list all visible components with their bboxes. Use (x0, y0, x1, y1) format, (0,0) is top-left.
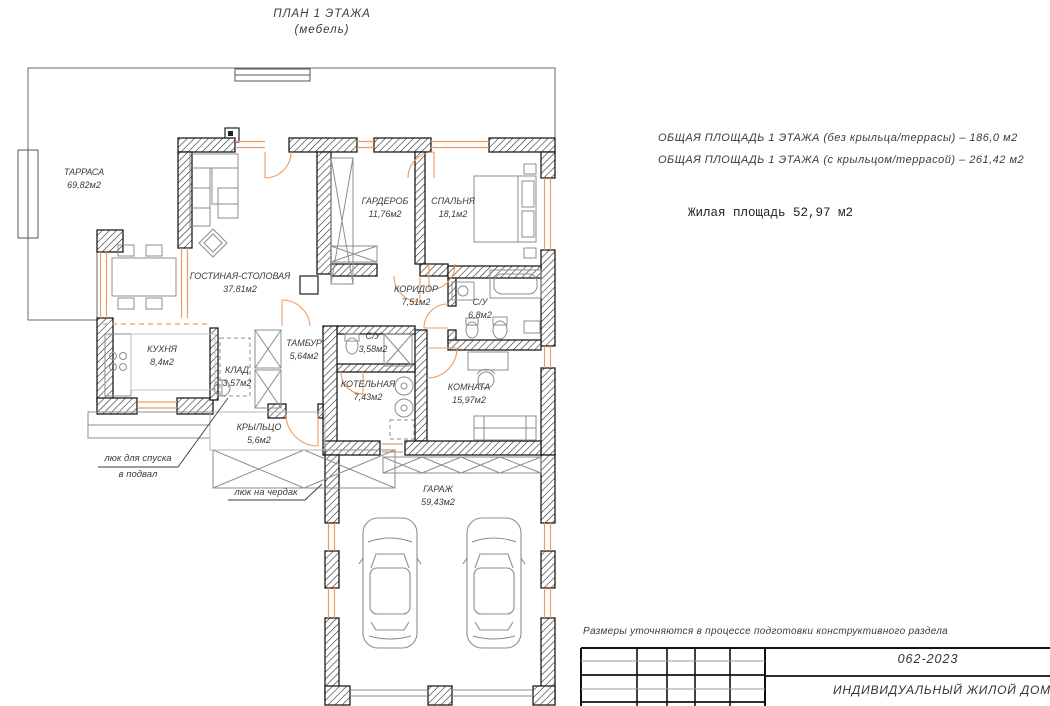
room-name: КОМНАТА (448, 381, 491, 394)
room-name: ГАРАЖ (421, 483, 455, 496)
room-name: С/У (359, 330, 388, 343)
room-label-pantry: КЛАД3,57м2 (223, 364, 252, 390)
doc-number: 062-2023 (898, 652, 959, 666)
room-label-garage: ГАРАЖ59,43м2 (421, 483, 455, 509)
room-name: ГАРДЕРОБ (362, 195, 409, 208)
room-name: ТАРРАСА (64, 166, 104, 179)
room-area: 59,43м2 (421, 496, 455, 509)
room-name: С/У (468, 296, 492, 309)
room-area: 15,97м2 (448, 394, 491, 407)
room-area: 3,57м2 (223, 377, 252, 390)
title-block (581, 648, 1050, 706)
room-area: 7,51м2 (394, 296, 438, 309)
room-name: КОРИДОР (394, 283, 438, 296)
room-label-boiler: КОТЕЛЬНАЯ7,43м2 (341, 378, 395, 404)
room-name: СПАЛЬНЯ (431, 195, 475, 208)
attic-hatch-note: люк на чердак (234, 487, 297, 499)
room-name: ГОСТИНАЯ-СТОЛОВАЯ (190, 270, 291, 283)
basement-hatch-note-line1: люк для спуска (104, 453, 171, 465)
duct-block (300, 276, 318, 294)
room-label-terrace: ТАРРАСА69,82м2 (64, 166, 104, 192)
room-area: 5,6м2 (237, 434, 282, 447)
room-label-wardrobe: ГАРДЕРОБ11,76м2 (362, 195, 409, 221)
doc-title: ИНДИВИДУАЛЬНЫЙ ЖИЛОЙ ДОМ (833, 683, 1050, 697)
basement-hatch-note-line2: в подвал (119, 469, 158, 481)
room-name: КРЫЛЬЦО (237, 421, 282, 434)
room-area: 37,81м2 (190, 283, 291, 296)
room-name: КОТЕЛЬНАЯ (341, 378, 395, 391)
living-area-text: Жилая площадь 52,97 м2 (688, 206, 853, 220)
page-title-line2: (мебель) (295, 24, 350, 36)
room-area: 3,58м2 (359, 343, 388, 356)
room-name: КУХНЯ (147, 343, 177, 356)
total-area-with-porch: ОБЩАЯ ПЛОЩАДЬ 1 ЭТАЖА (с крыльцом/террас… (658, 154, 1024, 166)
total-area-without-porch: ОБЩАЯ ПЛОЩАДЬ 1 ЭТАЖА (без крыльца/терра… (658, 132, 1018, 144)
room-label-bath1: С/У6,8м2 (468, 296, 492, 322)
room-area: 69,82м2 (64, 179, 104, 192)
room-area: 18,1м2 (431, 208, 475, 221)
room-area: 11,76м2 (362, 208, 409, 221)
room-label-living: ГОСТИНАЯ-СТОЛОВАЯ37,81м2 (190, 270, 291, 296)
room-label-vestibule: ТАМБУР5,64м2 (286, 337, 322, 363)
room-area: 5,64м2 (286, 350, 322, 363)
car-left (359, 518, 421, 648)
car-right (463, 518, 525, 648)
room-label-corridor: КОРИДОР7,51м2 (394, 283, 438, 309)
room-label-room: КОМНАТА15,97м2 (448, 381, 491, 407)
walls (97, 138, 555, 705)
page-title-line1: ПЛАН 1 ЭТАЖА (273, 8, 371, 20)
room-label-porch: КРЫЛЬЦО5,6м2 (237, 421, 282, 447)
room-label-bedroom: СПАЛЬНЯ18,1м2 (431, 195, 475, 221)
room-name: ТАМБУР (286, 337, 322, 350)
footer-note: Размеры уточняются в процессе подготовки… (583, 626, 948, 637)
drawing-sheet: ПЛАН 1 ЭТАЖА (мебель) ОБЩАЯ ПЛОЩАДЬ 1 ЭТ… (0, 0, 1050, 706)
room-name: КЛАД (223, 364, 252, 377)
room-label-bath2: С/У3,58м2 (359, 330, 388, 356)
room-area: 7,43м2 (341, 391, 395, 404)
room-area: 8,4м2 (147, 356, 177, 369)
room-area: 6,8м2 (468, 309, 492, 322)
room-label-kitchen: КУХНЯ8,4м2 (147, 343, 177, 369)
